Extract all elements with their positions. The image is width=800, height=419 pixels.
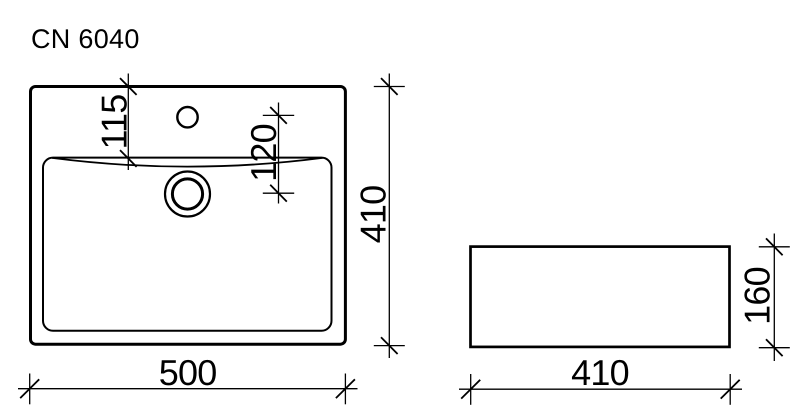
svg-text:160: 160 (737, 267, 778, 325)
svg-text:115: 115 (93, 95, 134, 150)
svg-text:CN 6040: CN 6040 (31, 24, 140, 54)
svg-text:500: 500 (159, 352, 217, 393)
svg-text:120: 120 (243, 124, 284, 182)
svg-text:410: 410 (571, 352, 629, 393)
svg-text:410: 410 (352, 186, 393, 244)
